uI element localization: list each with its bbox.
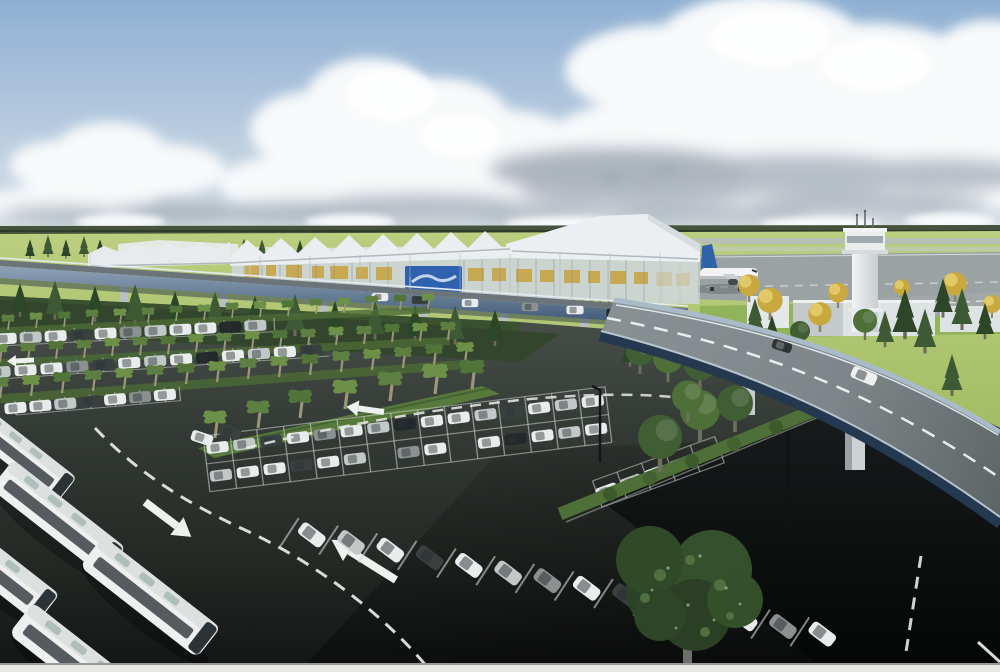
bottom-strip <box>0 663 1000 672</box>
airport-rendering <box>0 0 1000 672</box>
